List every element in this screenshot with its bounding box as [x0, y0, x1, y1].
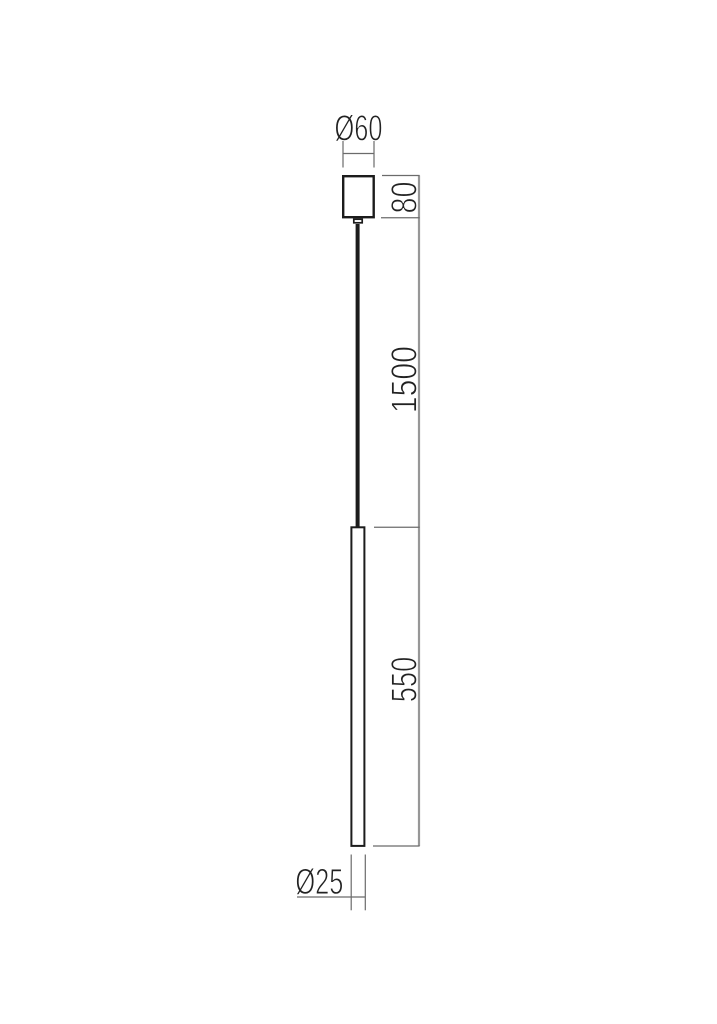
svg-text:550: 550 — [384, 657, 425, 703]
svg-text:80: 80 — [384, 182, 425, 214]
svg-text:1500: 1500 — [384, 346, 425, 413]
svg-text:Ø25: Ø25 — [295, 861, 343, 902]
svg-text:Ø60: Ø60 — [335, 107, 383, 148]
